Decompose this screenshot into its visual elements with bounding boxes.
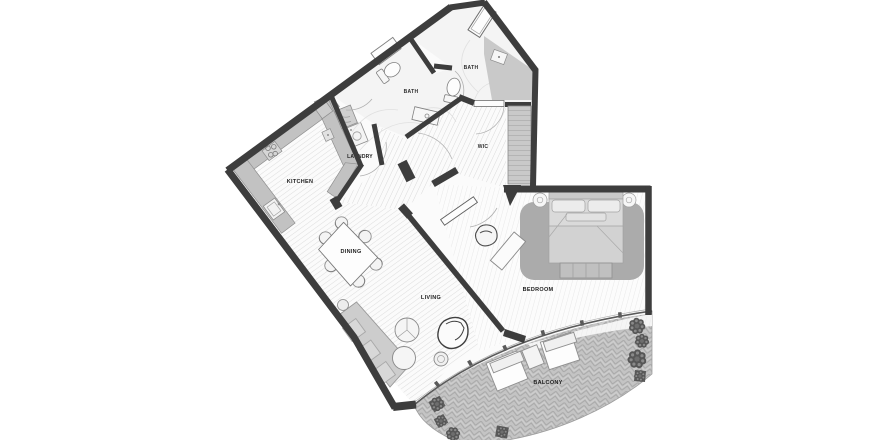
svg-text:WIC: WIC	[478, 144, 489, 150]
svg-text:BALCONY: BALCONY	[533, 380, 562, 386]
svg-text:LIVING: LIVING	[421, 295, 441, 301]
svg-text:BEDROOM: BEDROOM	[523, 287, 554, 293]
svg-text:KITCHEN: KITCHEN	[287, 179, 314, 185]
svg-text:BATH: BATH	[404, 89, 419, 95]
svg-text:DINING: DINING	[340, 249, 361, 255]
svg-text:BATH: BATH	[464, 65, 479, 71]
